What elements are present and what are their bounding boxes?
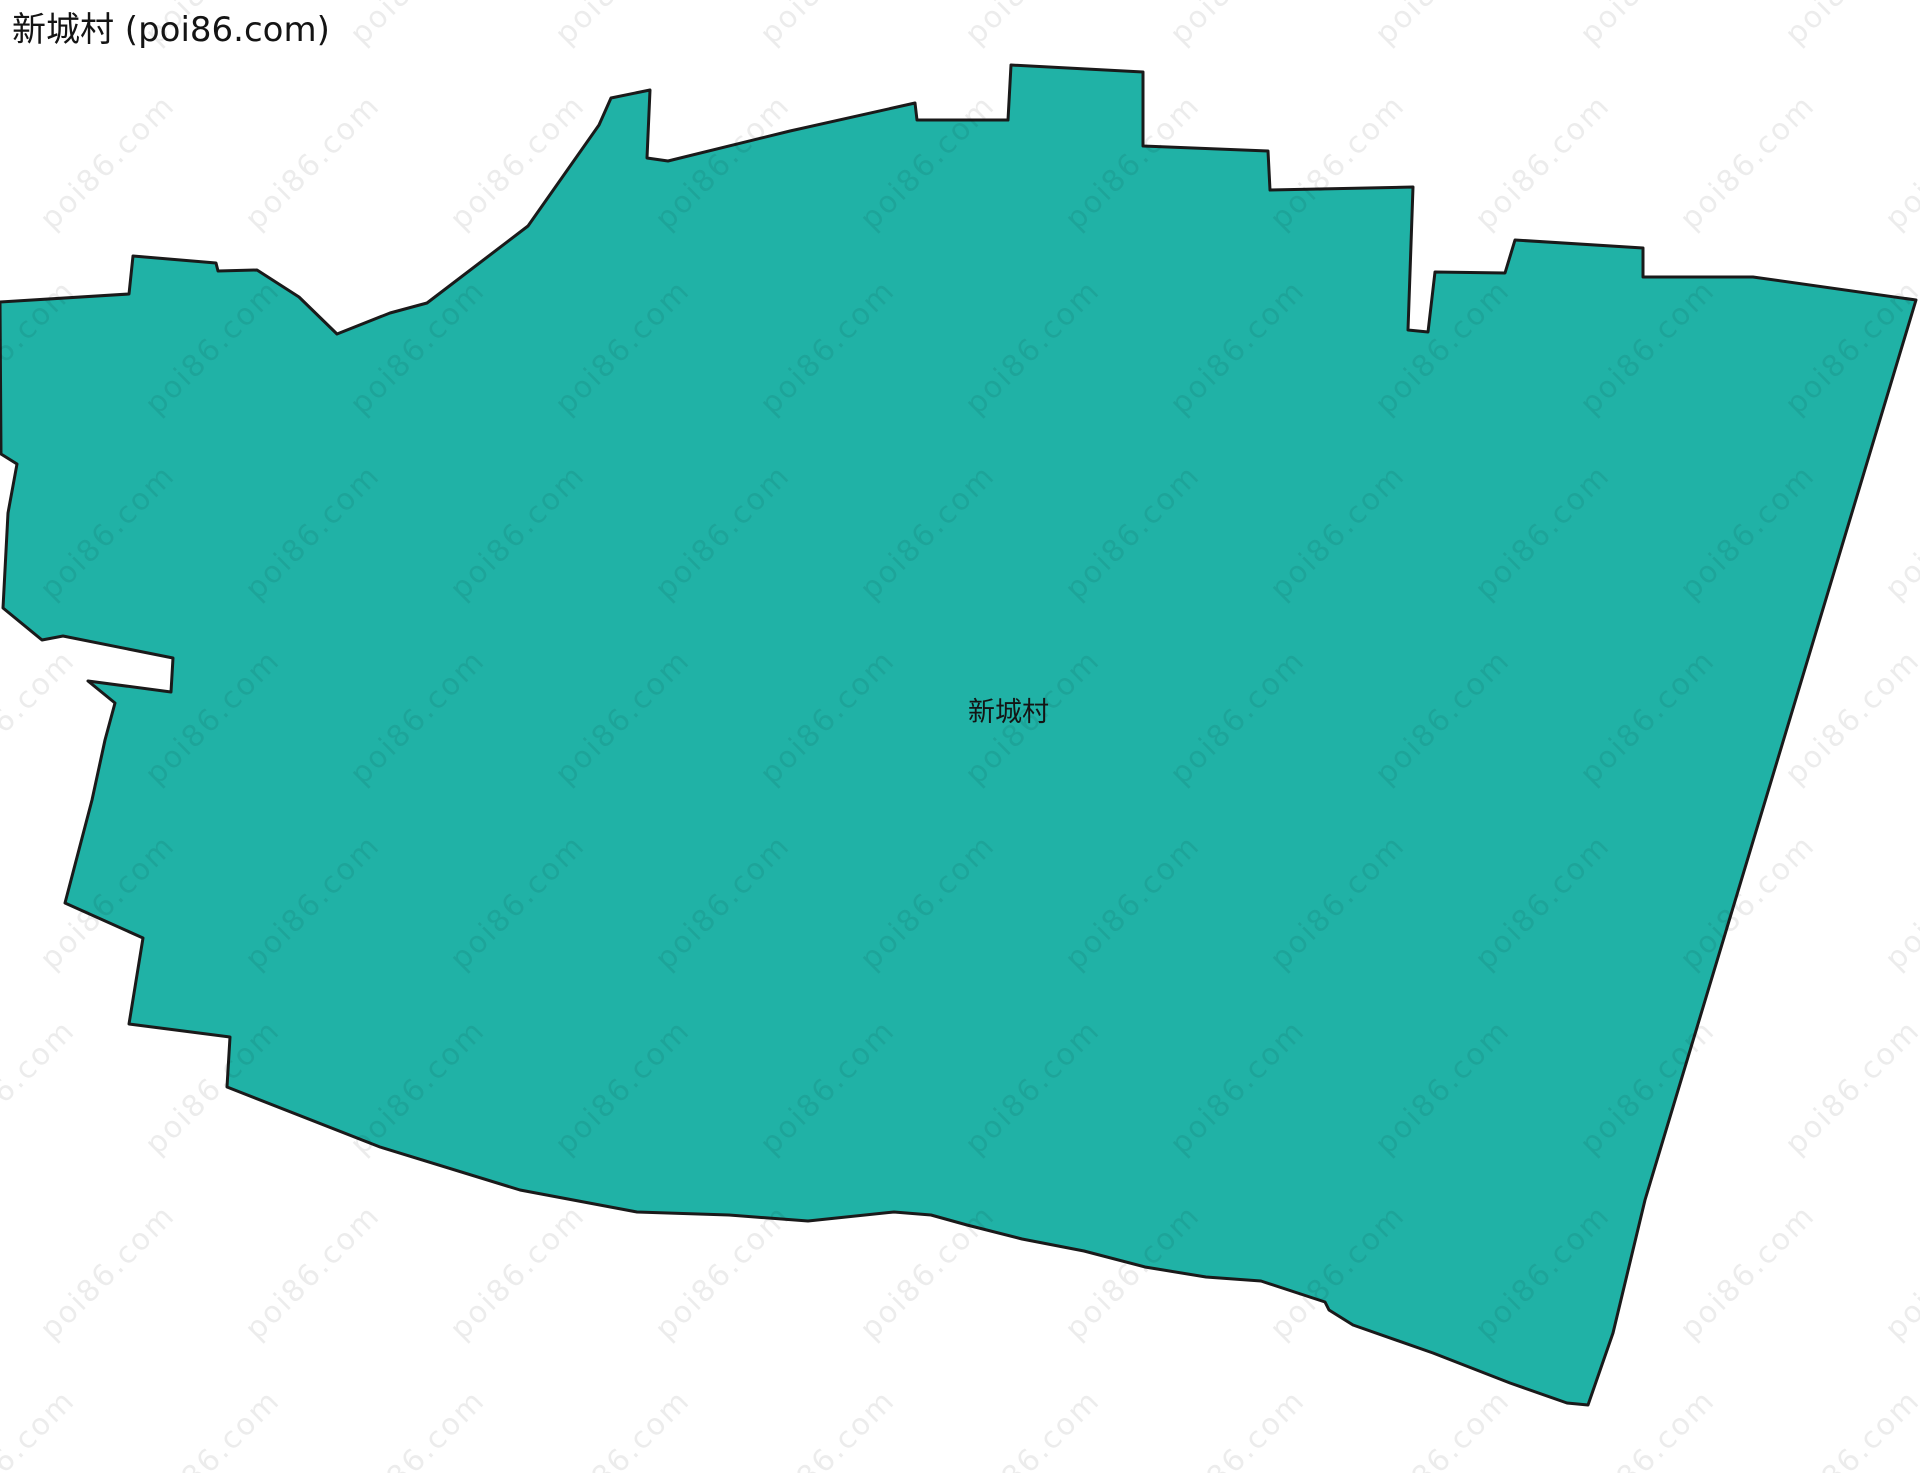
region-polygon[interactable] [0,65,1916,1405]
page-title: 新城村 (poi86.com) [12,10,330,51]
map-canvas[interactable] [0,0,1920,1473]
region-label: 新城村 [968,690,1049,729]
map-page: poi86.compoi86.compoi86.compoi86.compoi8… [0,0,1920,1473]
